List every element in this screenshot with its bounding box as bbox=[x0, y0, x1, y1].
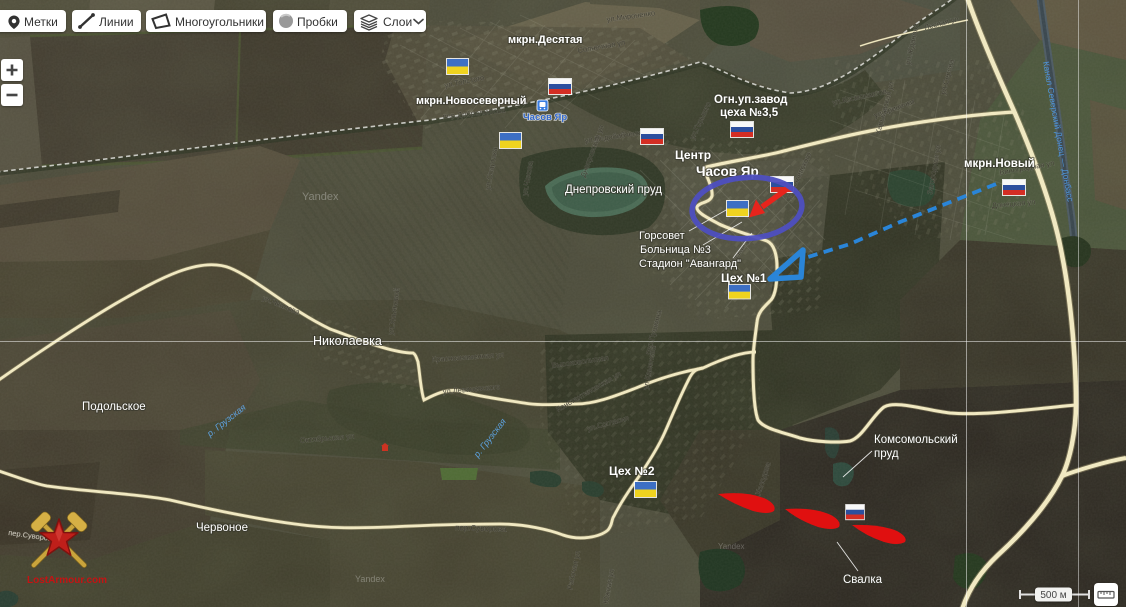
svg-text:Подольское: Подольское bbox=[82, 401, 146, 413]
svg-text:Днепровский пруд: Днепровский пруд bbox=[565, 184, 662, 196]
svg-text:Часов Яр: Часов Яр bbox=[523, 112, 567, 123]
svg-text:Слои: Слои bbox=[383, 15, 412, 29]
svg-text:пруд: пруд bbox=[874, 448, 899, 460]
svg-text:цеха №3,5: цеха №3,5 bbox=[720, 107, 779, 119]
svg-text:Многоугольники: Многоугольники bbox=[175, 15, 264, 29]
svg-text:Цех №1: Цех №1 bbox=[721, 271, 767, 285]
svg-text:LostArmour.com: LostArmour.com bbox=[27, 575, 107, 586]
svg-text:Огн.уп.завод: Огн.уп.завод bbox=[714, 94, 788, 106]
svg-text:мкрн.Новосеверный: мкрн.Новосеверный bbox=[416, 95, 526, 107]
svg-text:Yandex: Yandex bbox=[355, 574, 385, 584]
svg-text:500 м: 500 м bbox=[1040, 590, 1066, 601]
svg-text:Линии: Линии bbox=[99, 15, 134, 29]
svg-text:мкрн.Новый: мкрн.Новый bbox=[964, 158, 1035, 170]
svg-text:пер.Суворова: пер.Суворова bbox=[455, 523, 507, 534]
svg-text:Горсовет: Горсовет bbox=[639, 230, 685, 242]
svg-text:Стадион "Авангард": Стадион "Авангард" bbox=[639, 258, 741, 270]
svg-text:Свалка: Свалка bbox=[843, 574, 883, 586]
svg-text:Метки: Метки bbox=[24, 15, 58, 29]
svg-text:Центр: Центр bbox=[675, 148, 711, 162]
svg-text:мкрн.Десятая: мкрн.Десятая bbox=[508, 34, 582, 46]
svg-text:Пробки: Пробки bbox=[297, 15, 338, 29]
svg-text:Николаевка: Николаевка bbox=[313, 334, 382, 348]
svg-text:Yandex: Yandex bbox=[718, 542, 745, 551]
svg-text:Yandex: Yandex bbox=[302, 191, 339, 203]
svg-text:Комсомольский: Комсомольский bbox=[874, 434, 958, 446]
svg-text:Цех №2: Цех №2 bbox=[609, 464, 655, 478]
svg-text:Червоное: Червоное bbox=[196, 522, 248, 534]
svg-text:Больница №3: Больница №3 bbox=[640, 244, 711, 256]
